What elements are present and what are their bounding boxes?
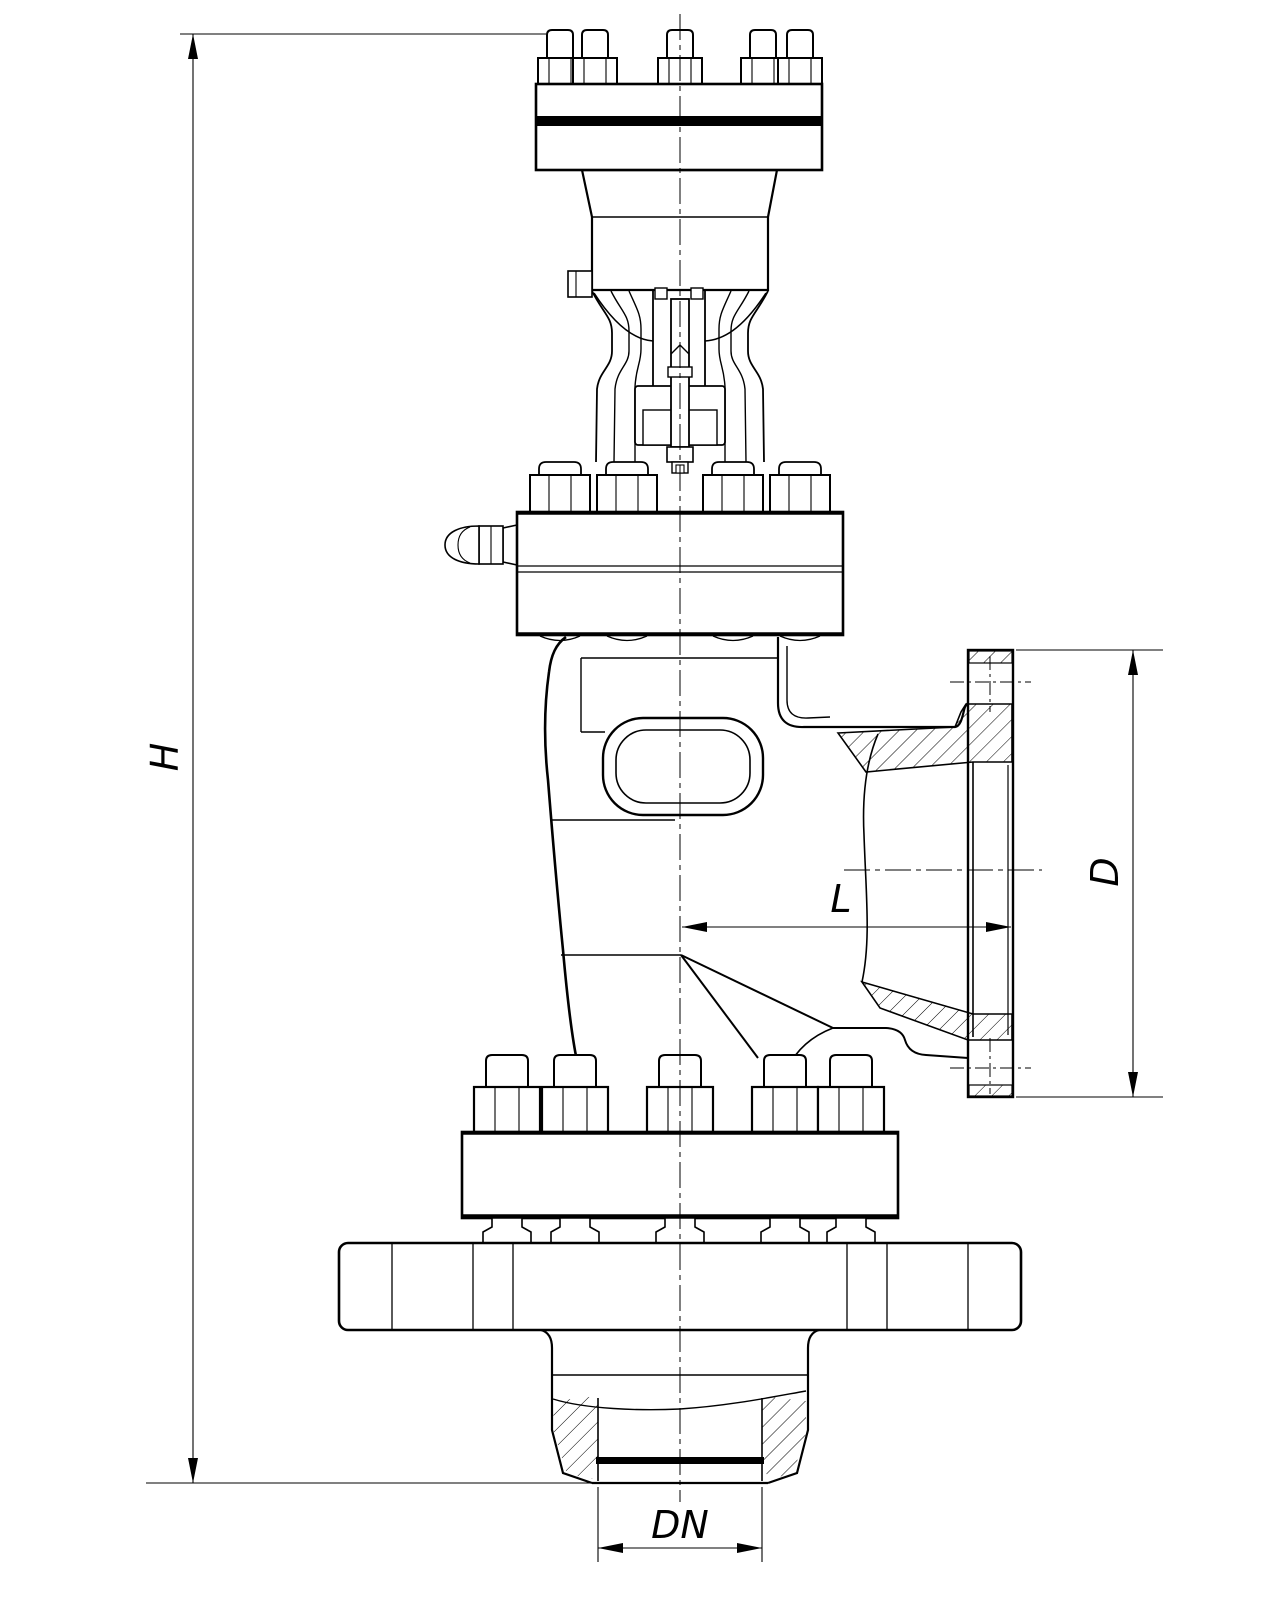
washer bbox=[483, 1218, 531, 1243]
gasket-band bbox=[536, 116, 822, 126]
d-dimension-label: D bbox=[1083, 857, 1127, 886]
bolt bbox=[542, 1055, 608, 1132]
arrow-down-icon bbox=[188, 1458, 198, 1483]
yoke-arm-right-outer bbox=[748, 291, 768, 462]
tube-cap-left bbox=[655, 288, 667, 299]
bottom-flange-bolts bbox=[474, 1055, 884, 1132]
bonnet-bell-left bbox=[594, 293, 653, 341]
d-dimension: D bbox=[1016, 650, 1163, 1097]
bolt bbox=[530, 462, 590, 512]
body-left-wall bbox=[545, 637, 576, 1056]
bottom-flange-washers bbox=[483, 1218, 875, 1243]
arrow-up-icon bbox=[188, 34, 198, 59]
yoke-arm-left-mid bbox=[611, 291, 629, 462]
washer bbox=[761, 1218, 809, 1243]
bonnet-bell-right bbox=[705, 293, 766, 341]
washer bbox=[827, 1218, 875, 1243]
bolt bbox=[703, 462, 763, 512]
body-rib-outer bbox=[778, 637, 970, 727]
body-rib-inner bbox=[787, 646, 830, 718]
grease-fitting bbox=[445, 525, 517, 565]
connector-section-left bbox=[553, 1396, 598, 1479]
washer bbox=[551, 1218, 599, 1243]
bolt bbox=[778, 30, 822, 84]
outlet-flange bbox=[838, 650, 1031, 1097]
arrow-up-icon bbox=[1128, 650, 1138, 675]
tube-cap-right bbox=[691, 288, 703, 299]
body-window bbox=[603, 718, 763, 815]
yoke-arm-left-outer bbox=[592, 291, 612, 462]
yoke-arm-right-mid bbox=[731, 291, 749, 462]
valve-technical-drawing-page: H D L DN bbox=[0, 0, 1280, 1600]
top-flange bbox=[536, 30, 822, 170]
bolt bbox=[597, 462, 657, 512]
arrow-left-icon bbox=[682, 922, 707, 932]
l-dimension: L bbox=[682, 877, 1011, 932]
outlet-hub-section-upper bbox=[838, 704, 1012, 772]
arrow-left-icon bbox=[598, 1543, 623, 1553]
dn-dimension-label: DN bbox=[651, 1503, 709, 1547]
arrow-down-icon bbox=[1128, 1072, 1138, 1097]
bolt bbox=[474, 1055, 540, 1132]
bolt bbox=[770, 462, 830, 512]
valve-sectional-drawing: H D L DN bbox=[0, 0, 1280, 1600]
bolt bbox=[573, 30, 617, 84]
l-dimension-label: L bbox=[830, 877, 851, 921]
bolt bbox=[818, 1055, 884, 1132]
h-dimension-label: H bbox=[143, 743, 187, 772]
arrow-right-icon bbox=[737, 1543, 762, 1553]
bolt bbox=[752, 1055, 818, 1132]
bonnet-side-tab bbox=[568, 271, 592, 297]
